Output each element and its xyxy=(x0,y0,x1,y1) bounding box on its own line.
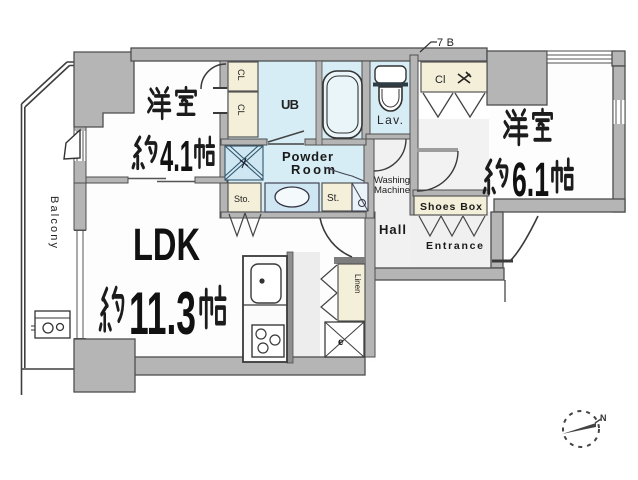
svg-text:UB: UB xyxy=(281,97,299,112)
svg-text:Shoes Box: Shoes Box xyxy=(420,201,482,213)
svg-text:4.1: 4.1 xyxy=(160,132,193,181)
svg-text:11.3: 11.3 xyxy=(129,280,196,347)
svg-text:N: N xyxy=(600,413,607,423)
svg-text:Linen: Linen xyxy=(353,274,362,294)
svg-text:LDK: LDK xyxy=(133,219,200,270)
svg-text:6.1: 6.1 xyxy=(512,154,549,207)
svg-text:Cl: Cl xyxy=(435,74,445,86)
svg-text:e: e xyxy=(338,337,344,348)
svg-text:Hall: Hall xyxy=(379,222,406,237)
svg-text:Entrance: Entrance xyxy=(426,240,483,252)
svg-text:CL: CL xyxy=(236,69,246,81)
svg-text:St.: St. xyxy=(327,193,339,204)
svg-text:Lav.: Lav. xyxy=(377,113,403,127)
svg-text:CL: CL xyxy=(236,104,246,116)
svg-text:Room: Room xyxy=(291,162,335,177)
svg-text:Machine: Machine xyxy=(374,185,410,196)
svg-text:Sto.: Sto. xyxy=(234,194,250,204)
